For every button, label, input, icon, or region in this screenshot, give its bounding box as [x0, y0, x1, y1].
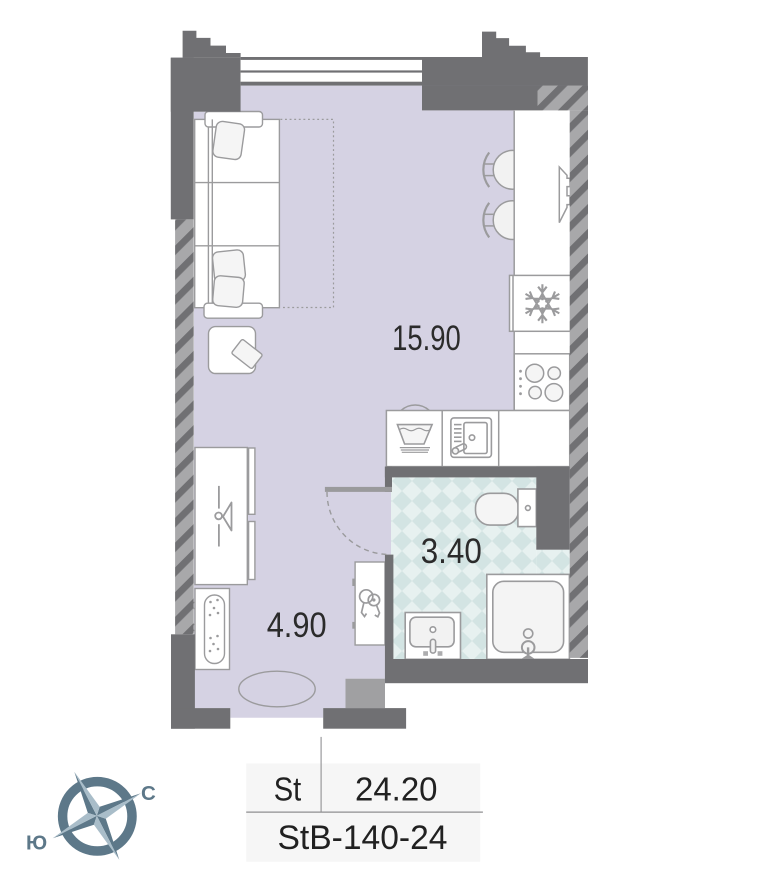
- svg-text:St: St: [274, 771, 302, 808]
- svg-text:StB-140-24: StB-140-24: [278, 819, 448, 857]
- svg-text:15.90: 15.90: [392, 319, 461, 358]
- svg-text:С: С: [141, 782, 156, 805]
- svg-text:4.90: 4.90: [267, 606, 327, 645]
- svg-text:24.20: 24.20: [355, 771, 438, 808]
- svg-text:Ю: Ю: [26, 832, 47, 855]
- svg-text:3.40: 3.40: [421, 532, 482, 571]
